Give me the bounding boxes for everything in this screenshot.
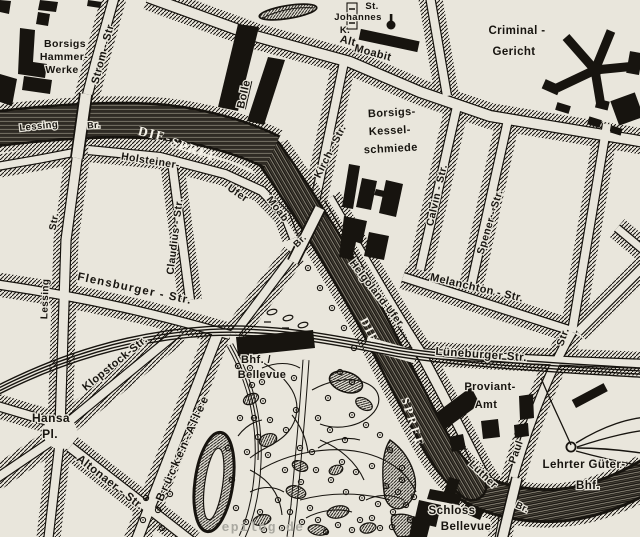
svg-text:Kessel-: Kessel- bbox=[369, 124, 412, 138]
svg-text:Bhf.: Bhf. bbox=[576, 480, 600, 492]
svg-text:Borsigs-: Borsigs- bbox=[368, 106, 416, 120]
svg-text:Hansa: Hansa bbox=[32, 411, 70, 425]
svg-text:Borsigs: Borsigs bbox=[44, 38, 86, 50]
svg-text:Bellevue: Bellevue bbox=[238, 369, 286, 381]
svg-text:Amt: Amt bbox=[475, 399, 498, 411]
svg-text:Bellevue: Bellevue bbox=[441, 521, 492, 533]
svg-text:Schloss: Schloss bbox=[429, 505, 476, 517]
svg-text:Lessing: Lessing bbox=[39, 278, 51, 319]
svg-text:Hammer-: Hammer- bbox=[40, 51, 88, 63]
svg-text:Pl.: Pl. bbox=[42, 427, 58, 441]
svg-text:Br.: Br. bbox=[87, 120, 101, 131]
svg-text:Proviant-: Proviant- bbox=[464, 381, 515, 393]
svg-text:Bhf. /: Bhf. / bbox=[241, 354, 271, 366]
svg-text:Lehrter Güter-: Lehrter Güter- bbox=[543, 459, 626, 471]
svg-text:St.: St. bbox=[365, 1, 378, 12]
svg-text:Criminal -: Criminal - bbox=[488, 25, 545, 37]
svg-text:Gericht: Gericht bbox=[492, 46, 535, 58]
svg-text:Johannes: Johannes bbox=[334, 12, 382, 23]
svg-text:Werke: Werke bbox=[45, 64, 78, 76]
svg-text:epilog.de: epilog.de bbox=[222, 520, 305, 535]
